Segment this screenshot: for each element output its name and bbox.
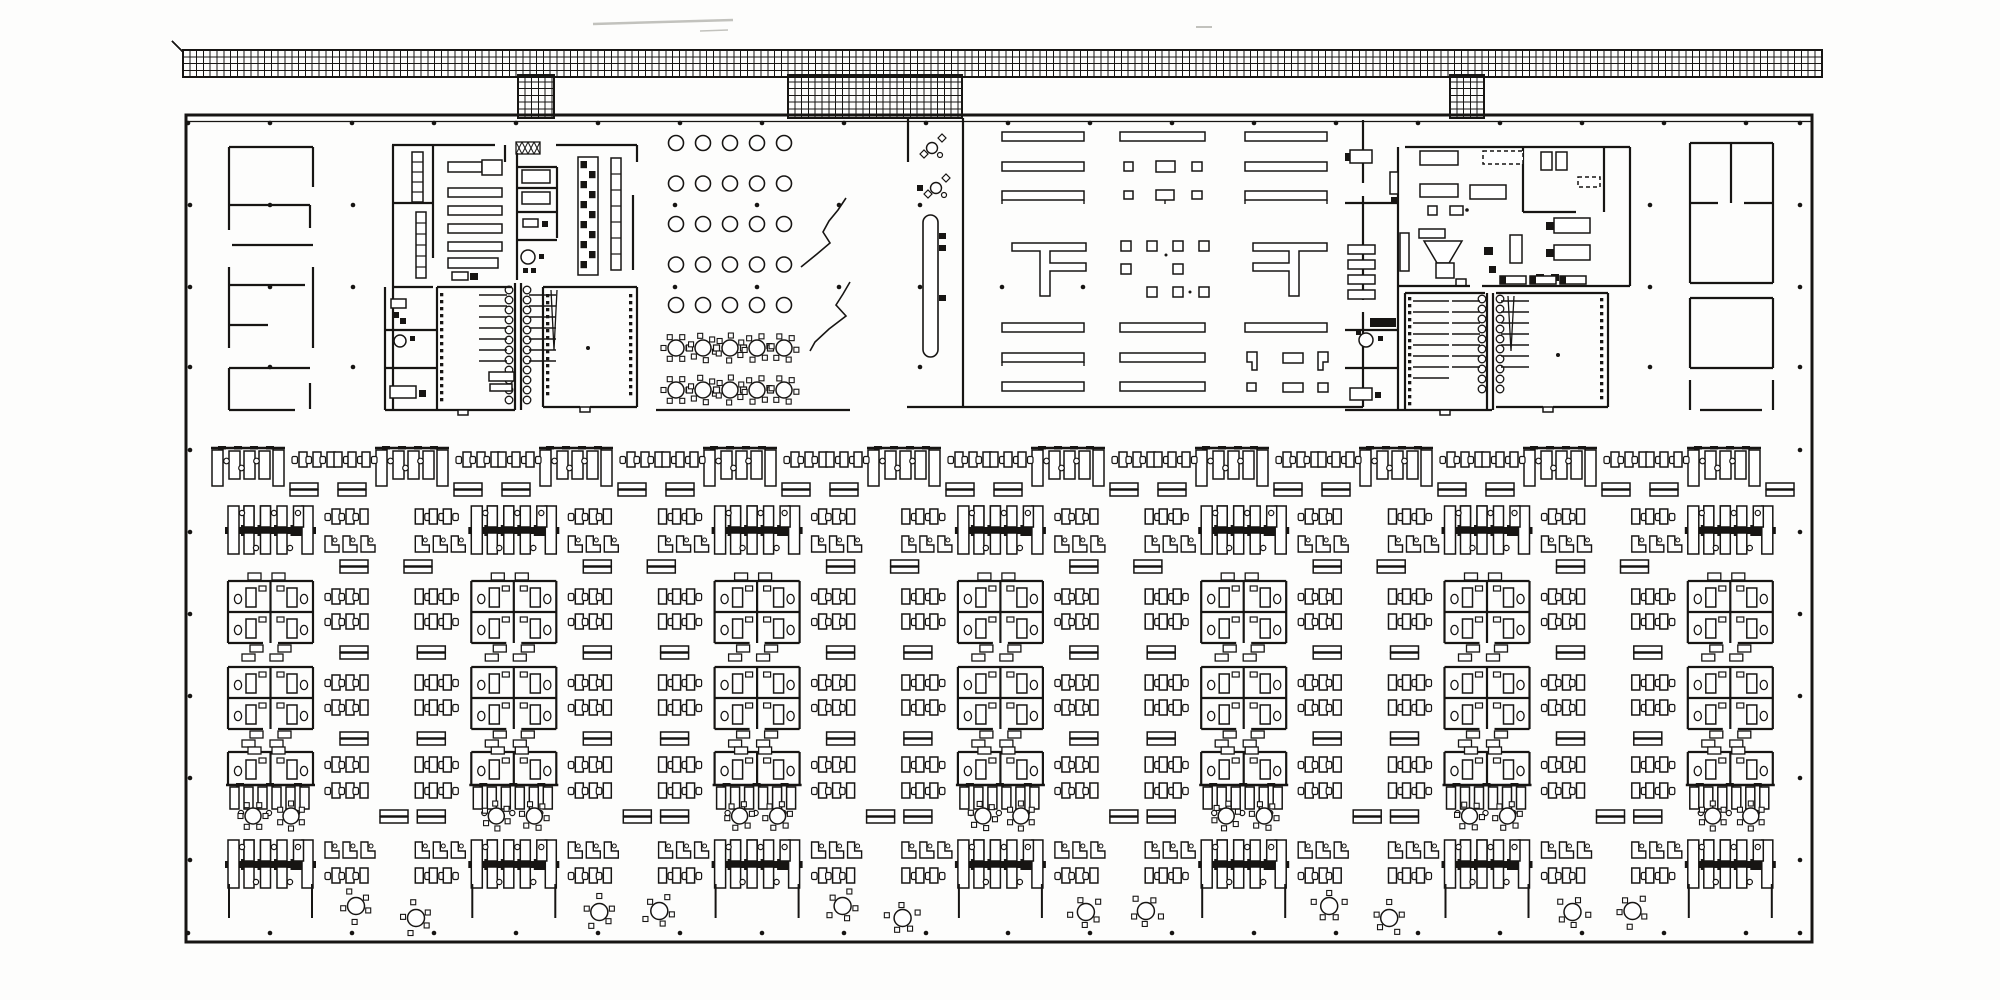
office-row-desk-batteries-1: [211, 446, 1761, 486]
floor-plan-sheet: [0, 0, 2000, 1000]
hatched-service-band: [172, 41, 1822, 118]
office-row-bench-batteries-dark: [225, 840, 1776, 918]
office-row-small-tables-1: [242, 645, 1751, 661]
zone-dining-hall: [656, 118, 963, 410]
scan-artifacts: [593, 20, 1212, 31]
zone-cellular-offices-left: [229, 147, 313, 410]
office-row-round-tables: [238, 801, 1764, 831]
zone-kitchen-servery-right: [1345, 147, 1630, 415]
zone-rooms-far-right: [1690, 143, 1773, 410]
zone-library-stacks: [963, 118, 1363, 407]
office-row-cubicle-battery: [226, 747, 1775, 816]
zone-kitchen-servery-left: [385, 142, 637, 415]
office-row-small-tables-2: [242, 731, 1751, 747]
floor-plan-svg: [0, 0, 2000, 1000]
office-row-meeting-tables-2: [340, 560, 1649, 573]
office-row-cubicle-quads-1: [228, 573, 1773, 643]
office-row-informal-meeting-circles: [341, 889, 1647, 936]
office-row-bench-batteries: [225, 506, 1776, 554]
office-row-cubicle-quads-2: [228, 667, 1773, 729]
